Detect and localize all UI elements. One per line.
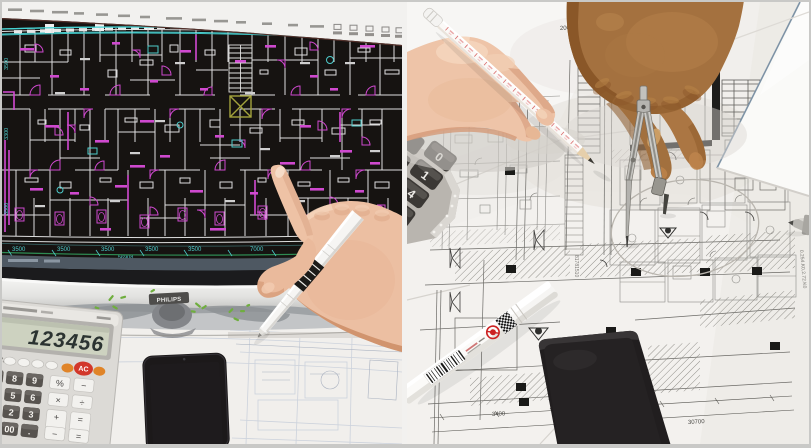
svg-text:81781510: 81781510 [573, 255, 579, 277]
svg-text:3: 3 [28, 409, 34, 419]
svg-text:−: − [81, 380, 87, 390]
svg-text:×: × [55, 395, 61, 405]
svg-text:3500: 3500 [101, 247, 115, 253]
svg-text:00: 00 [4, 424, 15, 435]
svg-text:3300: 3300 [4, 128, 10, 140]
svg-text:6: 6 [30, 392, 36, 402]
svg-text:−: − [52, 429, 58, 439]
svg-text:3500: 3500 [57, 247, 71, 253]
svg-text:3500: 3500 [4, 203, 10, 215]
svg-text:%: % [55, 378, 64, 389]
svg-text:3500: 3500 [145, 247, 159, 253]
svg-text:3500: 3500 [188, 247, 202, 253]
svg-text:7000: 7000 [250, 247, 264, 253]
svg-text:AC: AC [78, 366, 89, 374]
svg-text:30700: 30700 [688, 419, 706, 426]
svg-text:=: = [75, 431, 81, 441]
svg-text:3500: 3500 [12, 247, 26, 253]
svg-text:=: = [77, 414, 83, 424]
svg-text:3500: 3500 [4, 58, 10, 70]
svg-text:8: 8 [12, 373, 18, 383]
svg-text:9: 9 [32, 375, 38, 385]
svg-text:3400: 3400 [492, 411, 506, 418]
svg-text:+: + [53, 412, 59, 422]
svg-text:÷: ÷ [79, 397, 85, 407]
svg-text:5: 5 [10, 390, 16, 400]
svg-text:2: 2 [8, 407, 14, 417]
